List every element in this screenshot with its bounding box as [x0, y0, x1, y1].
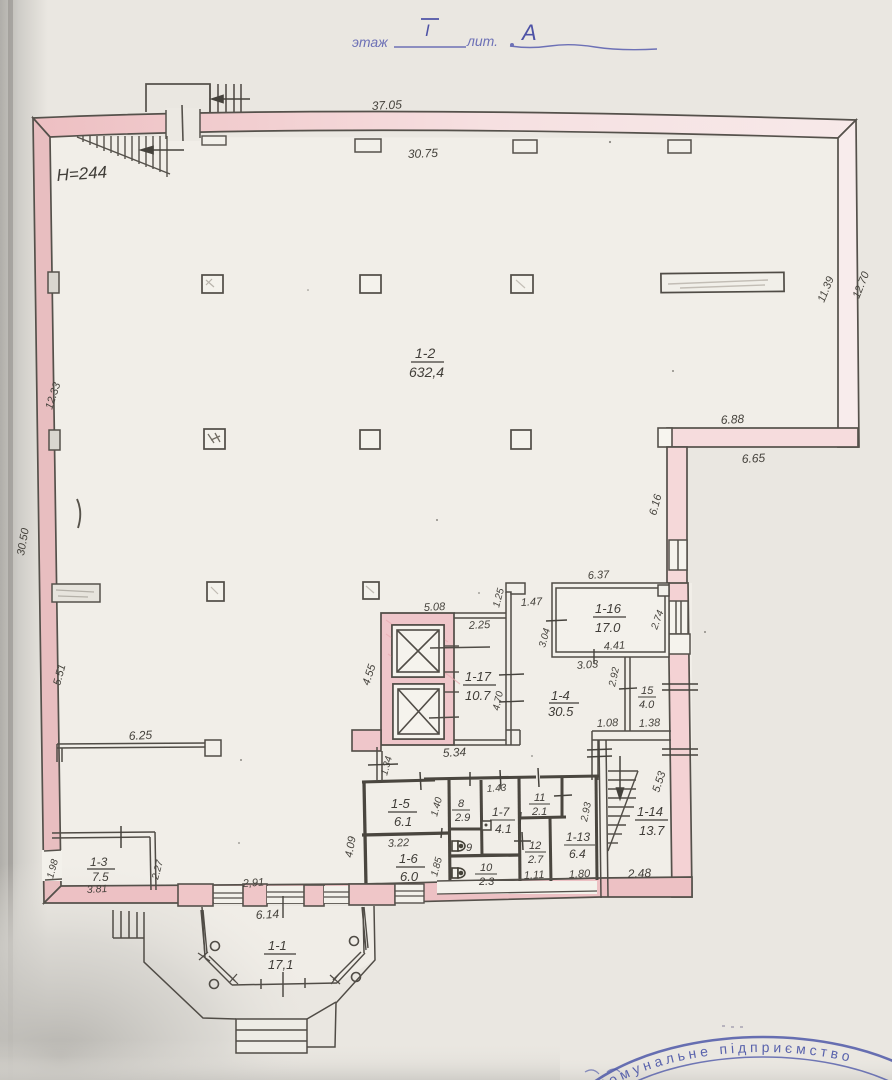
svg-text:2.1: 2.1 [531, 806, 547, 818]
svg-text:1.43: 1.43 [486, 783, 507, 795]
svg-text:1-1: 1-1 [268, 938, 287, 953]
svg-text:1.38: 1.38 [639, 717, 662, 730]
svg-text:6.65: 6.65 [741, 451, 765, 466]
svg-text:1-16: 1-16 [595, 601, 622, 616]
svg-text:1-2: 1-2 [415, 345, 435, 361]
svg-text:10: 10 [480, 862, 493, 874]
svg-text:9: 9 [466, 842, 472, 854]
svg-text:15: 15 [641, 685, 654, 697]
svg-text:1-4: 1-4 [551, 688, 570, 703]
svg-text:3.81: 3.81 [87, 883, 108, 896]
svg-text:3.22: 3.22 [388, 837, 410, 850]
svg-text:10.7: 10.7 [465, 688, 491, 703]
svg-text:30.5: 30.5 [548, 704, 574, 719]
svg-text:этаж: этаж [352, 34, 389, 50]
svg-text:1-5: 1-5 [391, 796, 411, 811]
svg-text:4.41: 4.41 [603, 640, 625, 653]
svg-text:4.0: 4.0 [639, 699, 655, 711]
svg-text:2.3: 2.3 [478, 876, 495, 888]
svg-text:17,1: 17,1 [268, 957, 293, 972]
svg-text:4.1: 4.1 [495, 822, 512, 836]
svg-text:А: А [520, 20, 537, 45]
svg-text:1.11: 1.11 [524, 869, 545, 882]
svg-text:632,4: 632,4 [409, 364, 444, 380]
svg-text:6.4: 6.4 [569, 847, 586, 861]
svg-text:17.0: 17.0 [595, 620, 621, 635]
svg-text:11: 11 [534, 792, 545, 804]
svg-text:2.7: 2.7 [527, 854, 544, 866]
svg-text:1.80: 1.80 [569, 868, 592, 881]
svg-text:7.5: 7.5 [92, 870, 109, 884]
svg-text:6.1: 6.1 [394, 814, 412, 829]
svg-text:2.48: 2.48 [626, 866, 651, 881]
svg-text:6.88: 6.88 [720, 412, 744, 427]
svg-text:6.0: 6.0 [400, 869, 419, 884]
svg-text:1-7: 1-7 [492, 805, 511, 819]
svg-text:3.03: 3.03 [576, 658, 599, 672]
svg-text:2.25: 2.25 [468, 619, 492, 632]
svg-text:лит.: лит. [466, 33, 498, 49]
svg-text:2,91: 2,91 [241, 877, 264, 891]
svg-text:6.37: 6.37 [588, 569, 611, 582]
svg-text:1-3: 1-3 [90, 855, 108, 869]
svg-text:30.75: 30.75 [408, 146, 439, 161]
svg-text:1.47: 1.47 [521, 596, 544, 609]
svg-text:1.08: 1.08 [597, 717, 620, 730]
svg-text:13.7: 13.7 [639, 823, 665, 838]
svg-text:I: I [425, 21, 430, 40]
svg-text:2.9: 2.9 [454, 812, 470, 824]
svg-text:1-17: 1-17 [465, 669, 492, 684]
svg-text:12: 12 [529, 840, 541, 852]
svg-text:8: 8 [458, 798, 465, 810]
svg-text:37.05: 37.05 [371, 97, 402, 113]
svg-text:1-14: 1-14 [637, 804, 663, 819]
svg-text:6.14: 6.14 [255, 907, 279, 922]
svg-text:H=244: H=244 [56, 163, 108, 185]
svg-text:5.08: 5.08 [424, 601, 447, 614]
svg-text:6.25: 6.25 [128, 728, 152, 743]
svg-text:1-13: 1-13 [566, 830, 590, 844]
svg-text:1-6: 1-6 [399, 851, 419, 866]
svg-text:5.34: 5.34 [442, 745, 466, 760]
